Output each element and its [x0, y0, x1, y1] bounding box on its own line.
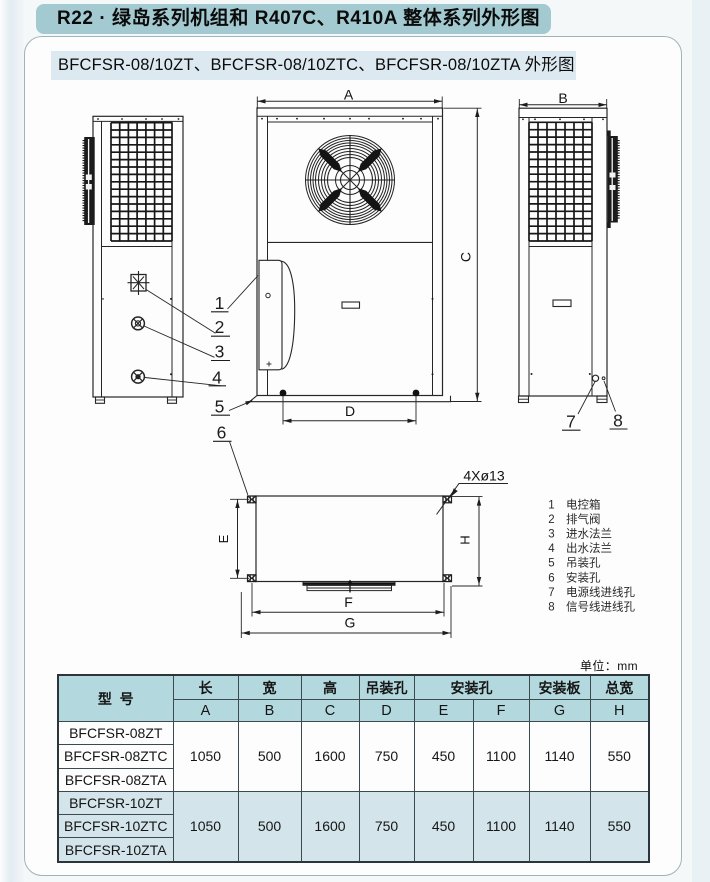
svg-text:电控箱: 电控箱 [566, 498, 601, 512]
svg-text:电源线进线孔: 电源线进线孔 [566, 585, 635, 599]
svg-text:6: 6 [217, 423, 227, 443]
svg-text:8: 8 [613, 411, 623, 431]
svg-text:3: 3 [215, 342, 225, 362]
svg-text:4: 4 [212, 367, 222, 387]
svg-text:5: 5 [215, 397, 225, 417]
svg-text:F: F [344, 594, 353, 610]
svg-text:1: 1 [548, 500, 554, 512]
svg-text:A: A [344, 87, 354, 103]
svg-text:7: 7 [548, 587, 554, 599]
svg-text:5: 5 [548, 558, 554, 570]
svg-text:6: 6 [548, 572, 554, 584]
svg-text:安装孔: 安装孔 [566, 570, 601, 584]
svg-text:H: H [458, 535, 473, 544]
svg-text:1: 1 [215, 293, 225, 313]
svg-text:信号线进线孔: 信号线进线孔 [566, 599, 635, 613]
svg-text:2: 2 [548, 514, 554, 526]
svg-text:B: B [558, 90, 567, 106]
svg-text:4: 4 [548, 543, 555, 555]
svg-text:排气阀: 排气阀 [566, 512, 601, 526]
svg-text:4Xø13: 4Xø13 [463, 468, 504, 484]
svg-text:C: C [458, 252, 474, 262]
svg-text:出水法兰: 出水法兰 [566, 541, 612, 555]
svg-text:D: D [345, 403, 355, 419]
svg-text:8: 8 [548, 601, 554, 613]
svg-text:7: 7 [566, 412, 576, 432]
svg-text:进水法兰: 进水法兰 [566, 527, 612, 541]
svg-text:G: G [345, 615, 356, 631]
svg-text:3: 3 [548, 529, 554, 541]
svg-text:2: 2 [215, 317, 225, 337]
svg-text:E: E [216, 534, 231, 543]
svg-text:吊装孔: 吊装孔 [566, 557, 601, 570]
